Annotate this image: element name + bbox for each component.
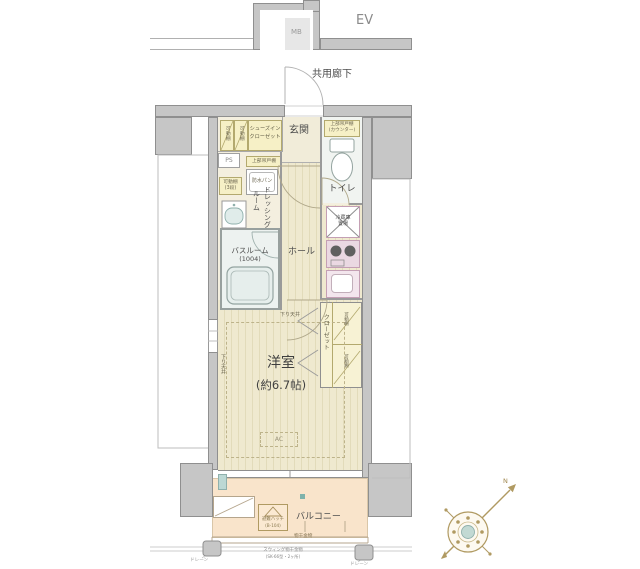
drain-label-left: ドレーン [190, 558, 208, 564]
entrance-side-line [282, 117, 283, 152]
room-label: 洋室 [254, 355, 308, 372]
shelf-cell-label-2: 可動棚 [238, 126, 244, 140]
kitchen-counter-line [322, 298, 362, 300]
left-wall-window [208, 320, 218, 352]
closet-shelf-label-1: 可動棚 [343, 312, 349, 326]
lowered-ceiling-label-h: 下り天井 [280, 312, 300, 318]
corridor-band-left [150, 38, 253, 50]
dressing-label-2: ルーム [252, 190, 260, 211]
toilet-shelf-label-1: 上部吊戸棚 [324, 122, 360, 128]
corridor-band-right [320, 38, 412, 50]
ev-label: EV [356, 13, 373, 29]
entrance-floor [282, 117, 320, 163]
toilet-shelf-label-2: (カウンター) [324, 128, 360, 134]
drain-label-right: ドレーン [350, 562, 368, 568]
mb-label: MB [291, 28, 302, 36]
dressing-label-1: ドレッシング [263, 186, 271, 228]
neighbor-block-top-right [372, 117, 412, 179]
top-wall-right [323, 105, 412, 117]
bathroom-size-label: (1004) [222, 256, 278, 264]
corridor-label: 共用廊下 [312, 69, 352, 81]
pipe-space-label: PS [218, 157, 240, 164]
waterproof-pan-label: 防水パン [246, 178, 278, 184]
hall-floor [282, 163, 320, 300]
balcony-partition-panel [213, 496, 255, 518]
room-size-label: (約6.7帖) [245, 379, 317, 393]
lowered-ceiling-label-v: 下り天井 [220, 354, 226, 374]
movable-shelf-label-2: (3段) [219, 186, 242, 192]
left-wall-lower [208, 352, 218, 470]
toilet-label: トイレ [325, 184, 359, 195]
neighbor-block-bottom-left [180, 463, 213, 517]
kitchen-left-wall [320, 205, 322, 300]
hall-left-wall [280, 152, 282, 310]
sic-bottom-line [218, 151, 282, 152]
balcony-note-2: (SK-66型・2ヶ所) [238, 554, 328, 559]
compass-north-label: N [503, 478, 508, 486]
downpipe [218, 474, 227, 490]
balcony-tap [300, 494, 305, 499]
closet-label: クローゼット [322, 314, 329, 350]
bathroom-box [220, 228, 280, 310]
balcony-label: バルコニー [296, 512, 341, 523]
shoe-closet-label-2: クローゼット [248, 134, 282, 140]
sink-inner [331, 274, 353, 293]
floorplan-canvas: EV MB 共用廊下 玄関 シューズイン クローゼット 可動棚 可動棚 PS 可… [0, 0, 640, 569]
laundry-bracket-label: 物干金物 [294, 534, 312, 540]
entrance-step-line [282, 162, 320, 163]
toilet-bottom-stub [349, 203, 362, 205]
left-wall-upper [208, 117, 218, 320]
shoe-closet-label-1: シューズイン [248, 126, 282, 132]
closet-shelf-label-2: 可動棚 [343, 354, 349, 368]
hatch-label-2: (B-104) [257, 523, 289, 528]
ground-post-right [355, 545, 373, 560]
left-wing-wall [155, 117, 192, 155]
shelf-cell-label-1: 可動棚 [224, 126, 230, 140]
compass-icon [441, 484, 516, 559]
top-wall-left [155, 105, 285, 117]
balcony-note-1: スウィング物干金物 [238, 548, 328, 553]
entrance-label: 玄関 [289, 125, 309, 137]
bathroom-label: バスルーム [222, 246, 278, 255]
upper-cabinet-label: 上部吊戸棚 [246, 159, 282, 165]
right-wall [362, 117, 372, 478]
ground-post-left [203, 541, 221, 556]
neighbor-block-bottom-right [368, 463, 412, 517]
movable-shelf-label-1: 可動棚 [219, 180, 242, 186]
hatch-label-1: 避難ハッチ [257, 517, 289, 522]
hall-label: ホール [288, 247, 315, 258]
window-bottom [218, 470, 362, 478]
stove-box [326, 240, 360, 268]
ac-label: AC [260, 436, 298, 443]
fridge-label-2: 置場 [326, 221, 360, 227]
toilet-left-wall [320, 117, 322, 205]
